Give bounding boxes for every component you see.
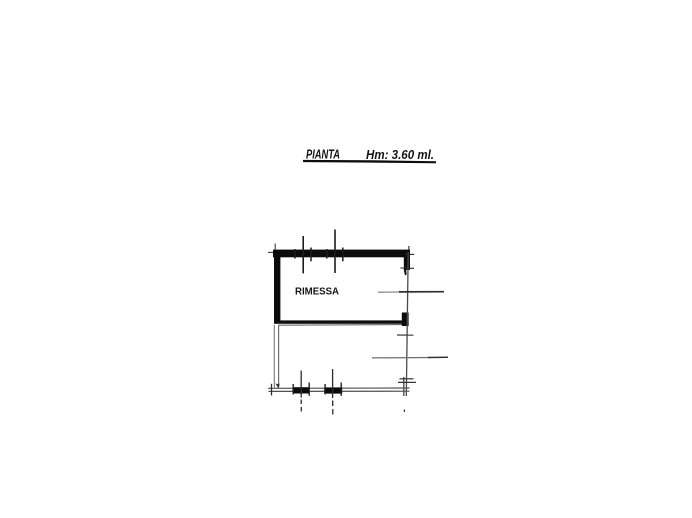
svg-text:RIMESSA: RIMESSA — [295, 286, 339, 298]
svg-text:Hm: 3.60 ml.: Hm: 3.60 ml. — [366, 148, 434, 162]
svg-text:PIANTA: PIANTA — [306, 148, 340, 162]
